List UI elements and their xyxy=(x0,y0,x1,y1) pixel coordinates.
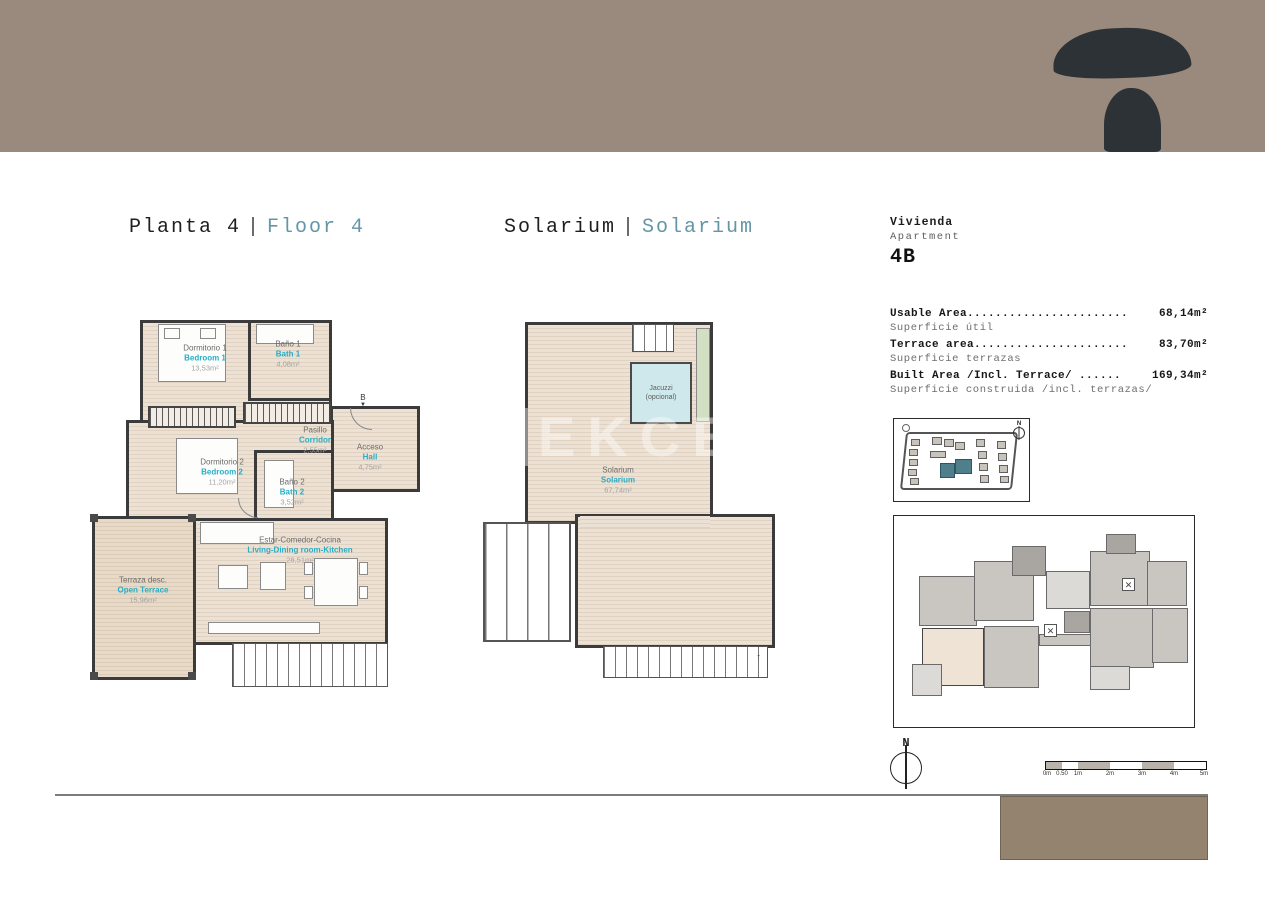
wardrobe xyxy=(148,406,236,428)
floor-heading-es: Planta 4 xyxy=(129,216,241,239)
solarium-lower-block xyxy=(575,514,775,648)
apartment-label-es: Vivienda xyxy=(890,216,960,229)
wardrobe xyxy=(243,402,331,424)
usable-area-value: 68,14m² xyxy=(1159,308,1208,320)
terrace-block xyxy=(92,516,196,680)
terrace-area-label: Terrace area...................... xyxy=(890,339,1128,351)
bath1-wall-bottom xyxy=(248,398,332,401)
solarium-heading-es: Solarium xyxy=(504,216,616,239)
apartment-label-en: Apartment xyxy=(890,231,960,243)
planter-strip xyxy=(696,328,710,422)
solarium-heading-en: Solarium xyxy=(642,216,754,239)
usable-area-label: Usable Area....................... xyxy=(890,308,1128,320)
floor-heading-en: Floor 4 xyxy=(267,216,365,239)
pillow xyxy=(164,328,180,339)
jacuzzi-label: Jacuzzi (opcional) xyxy=(646,384,677,402)
chair xyxy=(304,586,313,599)
solarium-top-stairs xyxy=(632,324,674,352)
apartment-info: Vivienda Apartment 4B xyxy=(890,216,960,269)
armchair xyxy=(218,565,248,589)
area-row-usable: Usable Area....................... 68,14… xyxy=(890,308,1208,320)
compass-needle xyxy=(905,745,907,789)
jacuzzi: Jacuzzi (opcional) xyxy=(630,362,692,424)
section-marker-b: B ▼ xyxy=(360,394,366,408)
bench xyxy=(208,622,320,634)
solarium-heading: Solarium|Solarium xyxy=(504,216,754,239)
watermark-logo: T xyxy=(470,408,528,466)
pergola xyxy=(483,522,571,642)
sofa xyxy=(200,522,274,544)
floor-join xyxy=(580,516,710,528)
terrace-pillar xyxy=(188,514,196,522)
chair xyxy=(359,586,368,599)
building-key-plan: ✕ ✕ xyxy=(893,515,1195,728)
shower2 xyxy=(264,460,294,508)
scale-tick: 0.50 xyxy=(1056,771,1068,777)
site-compass-circle xyxy=(1013,427,1025,439)
terrace-pillar xyxy=(90,672,98,680)
highlighted-building xyxy=(955,459,972,474)
scale-tick: 5m xyxy=(1200,771,1208,777)
jacuzzi-label-line1: Jacuzzi xyxy=(649,385,672,392)
section-marker-label: B xyxy=(360,393,365,402)
pillow xyxy=(200,328,216,339)
floor-heading-separator: | xyxy=(241,216,267,239)
scale-bar: 0m 0.50 1m 2m 3m 4m 5m xyxy=(1045,761,1207,783)
compass-circle xyxy=(890,752,922,784)
built-area-label-es: Superficie construida /incl. terrazas/ xyxy=(890,384,1208,396)
solarium-bottom-stairs xyxy=(603,646,768,678)
stairs xyxy=(232,643,388,687)
built-area-value: 169,34m² xyxy=(1152,370,1208,382)
jacuzzi-label-line2: (opcional) xyxy=(646,394,677,401)
scale-tick: 3m xyxy=(1138,771,1146,777)
chair xyxy=(304,562,313,575)
solarium-heading-separator: | xyxy=(616,216,642,239)
highlighted-building xyxy=(940,463,955,478)
section-marker-arrow-icon: ▼ xyxy=(360,402,366,408)
terrace-area-value: 83,70m² xyxy=(1159,339,1208,351)
scale-bar-segments xyxy=(1045,761,1207,770)
scale-tick: 1m xyxy=(1074,771,1082,777)
site-roundabout xyxy=(902,424,910,432)
dining-table xyxy=(314,558,358,606)
footer-brand-block xyxy=(1000,796,1208,860)
floor-plan-drawing: B ▼ Dormitorio 1 Bedroom 1 13,53m² Baño … xyxy=(88,310,433,695)
area-row-terrace: Terrace area...................... 83,70… xyxy=(890,339,1208,351)
area-row-built: Built Area /Incl. Terrace/ ...... 169,34… xyxy=(890,370,1208,382)
site-plan: N xyxy=(893,418,1030,502)
bath2-wall-top xyxy=(254,450,334,453)
floor-plan-heading: Planta 4|Floor 4 xyxy=(129,216,365,239)
solarium-plan-drawing: Jacuzzi (opcional) ↑ Solarium Solarium 6… xyxy=(468,308,803,703)
bed2 xyxy=(176,438,238,494)
usable-area-label-es: Superficie útil xyxy=(890,322,1208,334)
scale-tick: 4m xyxy=(1170,771,1178,777)
terrace-pillar xyxy=(188,672,196,680)
armchair xyxy=(260,562,286,590)
terrace-area-label-es: Superficie terrazas xyxy=(890,353,1208,365)
terrace-pillar xyxy=(90,514,98,522)
area-table: Usable Area....................... 68,14… xyxy=(890,308,1208,401)
apartment-unit: 4B xyxy=(890,246,960,269)
scale-tick: 2m xyxy=(1106,771,1114,777)
stairs-arrow-icon: ↑ xyxy=(756,652,761,663)
hall-block xyxy=(330,406,420,492)
bath1-wall xyxy=(248,322,251,400)
site-compass: N xyxy=(1012,421,1026,439)
scale-tick: 0m xyxy=(1043,771,1051,777)
chair xyxy=(359,562,368,575)
built-area-label: Built Area /Incl. Terrace/ ...... xyxy=(890,370,1121,382)
north-compass: N xyxy=(884,736,928,784)
bathtub1 xyxy=(256,324,314,344)
